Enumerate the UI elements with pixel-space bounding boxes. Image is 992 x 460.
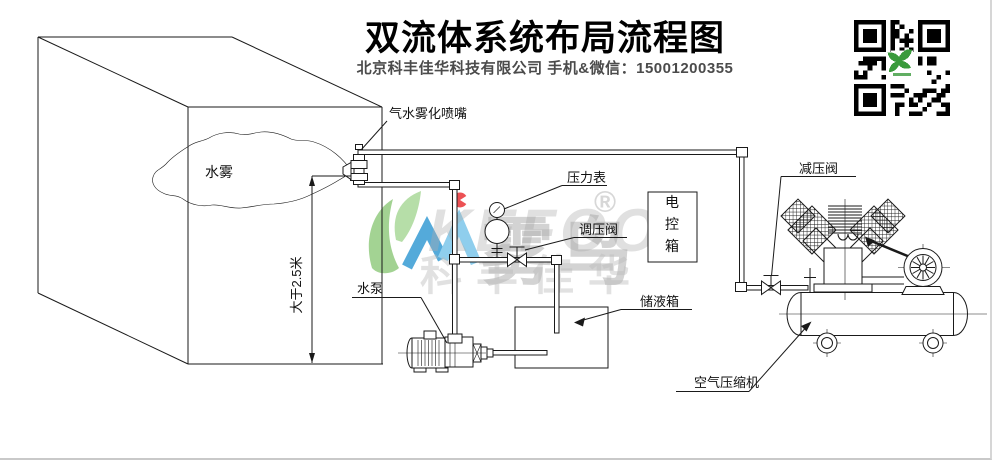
return-pipe-to-tank — [555, 265, 560, 334]
reducing-valve-label: 减压阀 — [799, 161, 838, 176]
watermark-logo: KEFOO ® 雾鸟 科丰佳华 — [369, 186, 662, 299]
compressor-wheel — [813, 329, 841, 357]
nozzle-label: 气水雾化喷嘴 — [389, 106, 467, 121]
regulating-valve-label: 调压阀 — [579, 222, 618, 237]
storage-tank — [515, 307, 608, 368]
control-box-label: 电控箱 — [665, 194, 679, 254]
pipe-tee — [450, 255, 460, 265]
discharge-flange — [448, 334, 462, 343]
bypass-pipe-horizontal — [460, 258, 554, 263]
motor-terminal-box — [424, 331, 436, 339]
water-pump-symbol — [398, 331, 493, 372]
storage-tank-label: 储液箱 — [640, 294, 679, 309]
pipe-elbow — [737, 148, 748, 158]
pipe-elbow — [736, 283, 747, 292]
suction-pipe — [493, 351, 547, 356]
water-pipe-horizontal — [358, 183, 456, 188]
room-box — [38, 37, 383, 364]
mist-cloud: 水雾 — [153, 132, 351, 208]
water-pump-label: 水泵 — [357, 281, 383, 296]
height-dimension: 大于2.5米 — [289, 176, 351, 363]
flow-diagram: KEFOO ® 雾鸟 科丰佳华 水雾 — [0, 0, 992, 460]
diagram-canvas: 双流体系统布局流程图 北京科丰佳华科技有限公司 手机&微信：1500120035… — [0, 0, 992, 460]
leaf-icon — [395, 191, 421, 242]
compressor-wheel — [919, 329, 947, 357]
compressor-base — [814, 284, 872, 292]
air-compressor-label: 空气压缩机 — [694, 375, 759, 390]
pipe-elbow — [552, 256, 562, 265]
leaf-icon — [369, 199, 399, 273]
air-compressor-symbol — [779, 199, 987, 357]
electric-control-box: 电控箱 — [648, 192, 697, 262]
water-mist-label: 水雾 — [205, 164, 233, 180]
pressure-gauge-label: 压力表 — [567, 170, 606, 185]
air-pipe-vertical — [740, 156, 745, 284]
min-height-label: 大于2.5米 — [289, 256, 304, 313]
pipe-elbow — [450, 181, 460, 190]
reducing-valve-symbol — [762, 276, 781, 295]
motor-base — [902, 287, 944, 295]
air-pipe-horizontal — [358, 150, 742, 155]
